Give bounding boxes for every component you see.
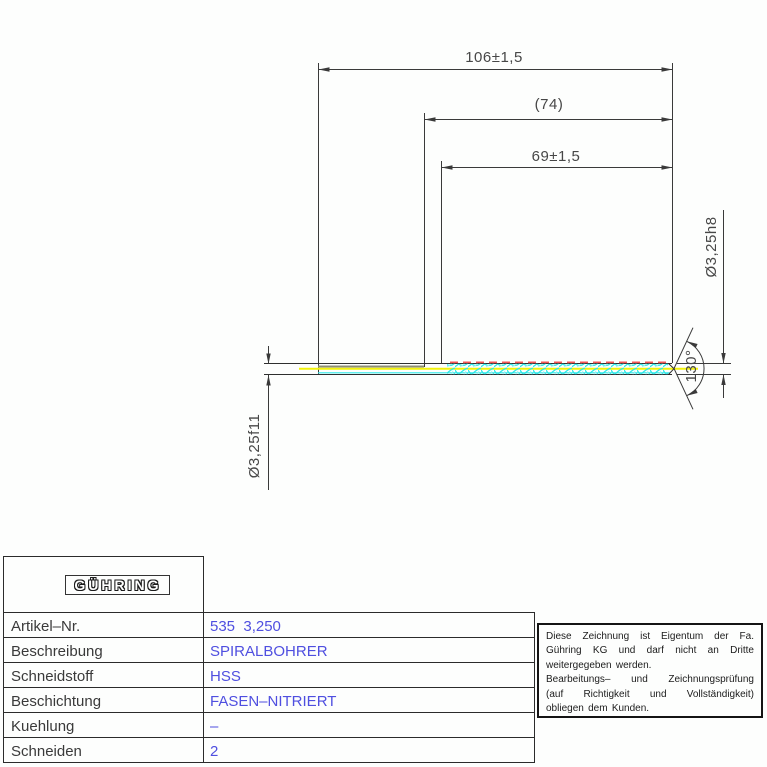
row-value: FASEN–NITRIERT <box>204 688 535 713</box>
row-label: Beschichtung <box>4 688 204 713</box>
dim-point-angle-text: 130° <box>683 349 700 382</box>
row-label: Artikel–Nr. <box>4 613 204 638</box>
row-label: Beschreibung <box>4 638 204 663</box>
logo-cell: GÜHRING <box>4 557 204 613</box>
notice-line: Diese Zeichnung ist Eigentum der Fa. <box>546 630 754 644</box>
arrowhead-arc-bottom-icon <box>687 389 698 396</box>
header-empty-cell <box>204 557 535 613</box>
notice-line: obliegen dem Kunden. <box>546 702 754 716</box>
dim-flute-length-text: 69±1,5 <box>532 148 581 165</box>
title-block-table: GÜHRING Artikel–Nr. 535 3,250 Beschreibu… <box>3 556 535 763</box>
arrowhead-left-icon <box>442 165 453 169</box>
dimension-ref-length: (74) <box>425 96 673 367</box>
arrowhead-up-icon <box>266 375 270 386</box>
table-row: Artikel–Nr. 535 3,250 <box>4 613 535 638</box>
notice-line: Gühring KG und darf nicht an Dritte <box>546 644 754 658</box>
drill-drawing: 106±1,5 (74) 69±1,5 <box>0 0 767 548</box>
dim-flute-diameter-text: Ø3,25h8 <box>703 216 720 277</box>
logo-box: GÜHRING <box>65 575 170 595</box>
dimension-total-length: 106±1,5 <box>319 49 673 375</box>
table-row: Schneidstoff HSS <box>4 663 535 688</box>
table-row: Beschreibung SPIRALBOHRER <box>4 638 535 663</box>
table-row: Kuehlung – <box>4 713 535 738</box>
dim-shank-diameter-text: Ø3,25f11 <box>246 414 263 479</box>
arrowhead-down-icon <box>721 353 725 364</box>
drill-body <box>264 362 698 374</box>
dimension-flute-length: 69±1,5 <box>442 148 673 363</box>
row-value: HSS <box>204 663 535 688</box>
notice-line: weitergegeben werden. <box>546 659 754 673</box>
ownership-notice: Diese Zeichnung ist Eigentum der Fa. Güh… <box>537 623 763 718</box>
arrowhead-left-icon <box>425 117 436 121</box>
row-label: Schneidstoff <box>4 663 204 688</box>
arrowhead-right-icon <box>662 117 673 121</box>
table-row: Schneiden 2 <box>4 738 535 763</box>
notice-line: Bearbeitungs– und Zeichnungsprüfung <box>546 673 754 687</box>
arrowhead-right-icon <box>662 165 673 169</box>
table-row: Beschichtung FASEN–NITRIERT <box>4 688 535 713</box>
table-header-row: GÜHRING <box>4 557 535 613</box>
notice-line: (auf Richtigkeit und Vollständigkeit) <box>546 688 754 702</box>
technical-drawing-page: 106±1,5 (74) 69±1,5 <box>0 0 767 767</box>
arrowhead-left-icon <box>319 67 330 71</box>
flute-helix-pattern <box>447 364 668 374</box>
row-value: SPIRALBOHRER <box>204 638 535 663</box>
arrowhead-up-icon <box>721 375 725 386</box>
dim-total-length-text: 106±1,5 <box>465 49 523 66</box>
row-value: 2 <box>204 738 535 763</box>
dim-ref-length-text: (74) <box>535 96 564 113</box>
row-label: Schneiden <box>4 738 204 763</box>
dimension-shank-diameter: Ø3,25f11 <box>246 346 271 490</box>
guehring-logo: GÜHRING <box>74 577 161 593</box>
row-label: Kuehlung <box>4 713 204 738</box>
row-value: 535 3,250 <box>204 613 535 638</box>
arrowhead-arc-top-icon <box>687 341 698 348</box>
arrowhead-down-icon <box>266 354 270 365</box>
row-value: – <box>204 713 535 738</box>
arrowhead-right-icon <box>662 67 673 71</box>
